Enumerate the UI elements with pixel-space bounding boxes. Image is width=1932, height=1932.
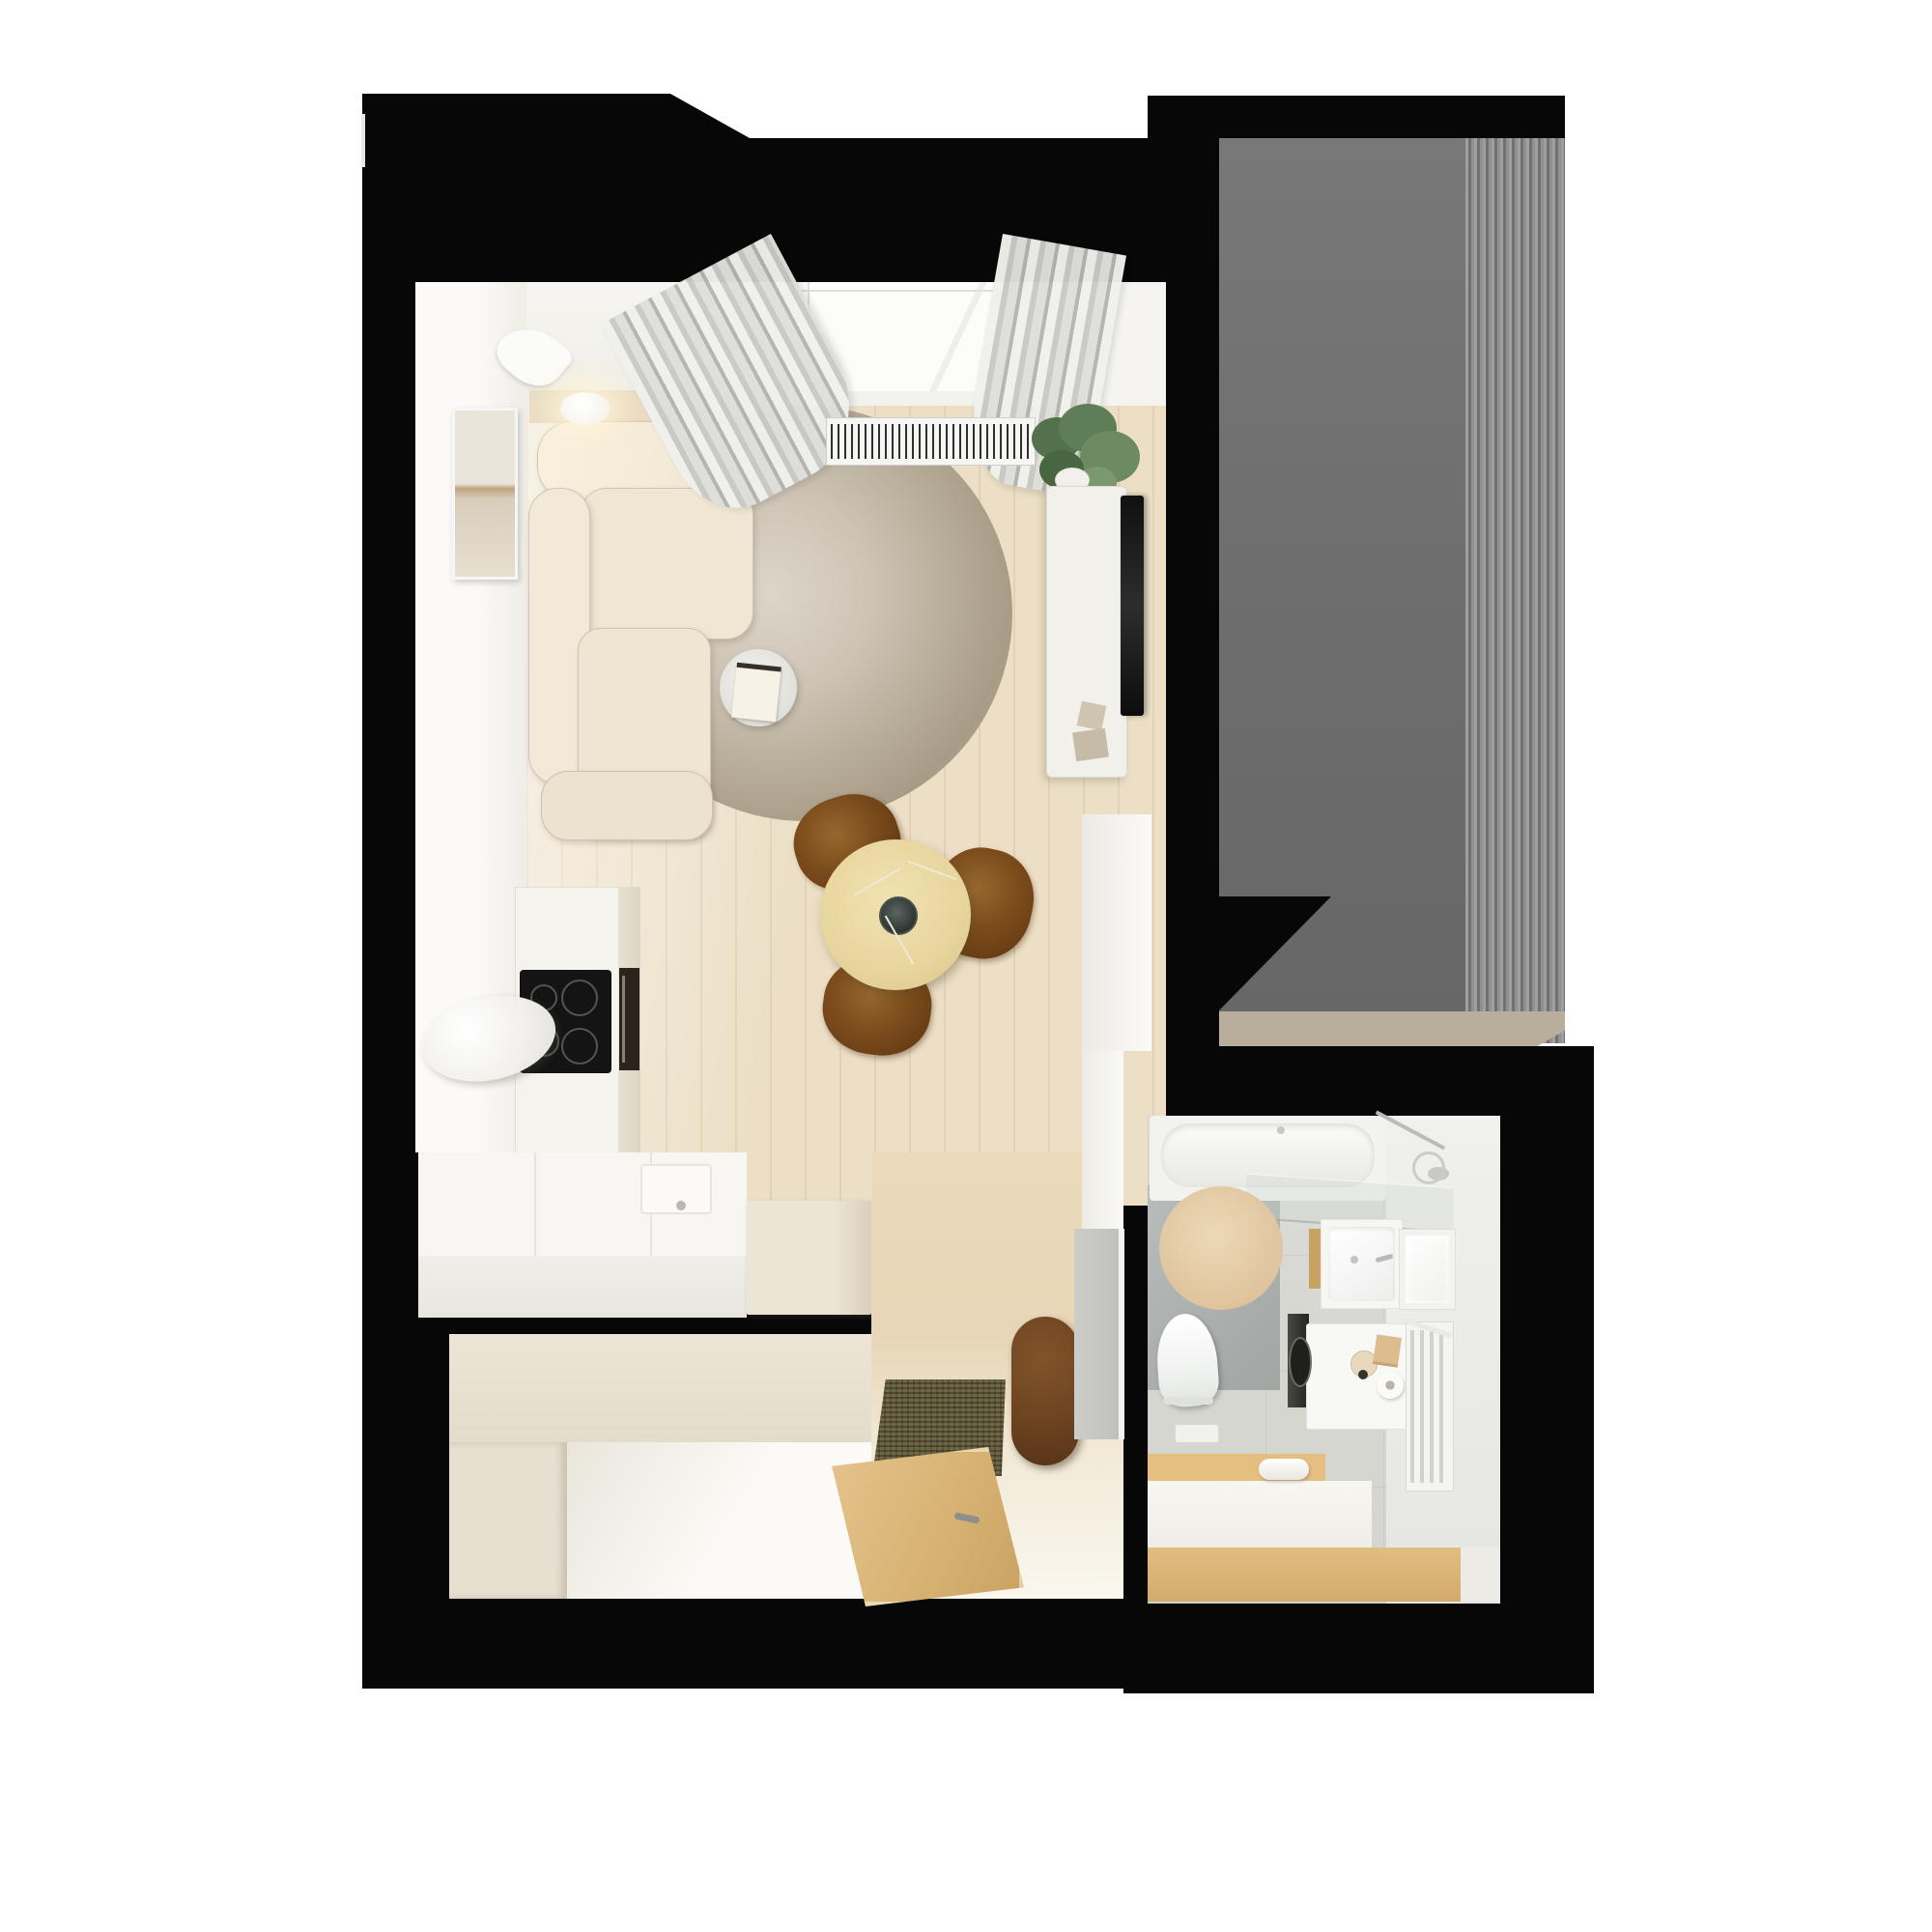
cabinet-decor-object <box>1077 701 1107 731</box>
cabinet-white-edge <box>1119 1229 1124 1439</box>
hallway-gray-cabinet <box>1074 1229 1119 1439</box>
kitchen-faucet <box>676 1201 686 1210</box>
toilet-paper-roll <box>1377 1372 1404 1399</box>
balcony-floor-strip <box>1219 1011 1565 1046</box>
washer-knob-dot <box>1358 1370 1368 1379</box>
oven-handle <box>622 976 625 1063</box>
wall-art-frame <box>452 408 518 580</box>
radiator-fins <box>831 424 1031 459</box>
partition-wall-upper <box>1082 814 1151 1051</box>
living-balcony-wall <box>1166 138 1219 1116</box>
toilet-base <box>1163 1397 1213 1405</box>
bathroom-round-rug <box>1159 1186 1283 1310</box>
sofa-back-cushion-bottom <box>541 771 713 840</box>
floor-lamp-glow <box>560 392 611 425</box>
wall-corner-sliver <box>361 114 365 167</box>
partition-wall-lower <box>1082 1051 1123 1229</box>
wall-mounted-tv <box>1121 496 1144 716</box>
bathroom-wood-step <box>1148 1548 1461 1602</box>
bathroom-bench <box>1148 1481 1372 1548</box>
storage-box <box>1373 1334 1402 1367</box>
towel-ring <box>1412 1151 1445 1184</box>
cabinet-decor-object <box>1072 728 1109 761</box>
mirror-cabinet <box>1399 1229 1456 1310</box>
balcony-shaded-wall <box>1219 138 1465 1011</box>
hallway-bench-pouf <box>1011 1317 1079 1465</box>
bathroom-bottom-white-strip <box>1461 1548 1500 1602</box>
counter-seam <box>534 1152 536 1259</box>
wall-art-image <box>455 411 515 577</box>
floor-radiator-grille <box>826 417 1036 466</box>
kitchen-peninsula-cabinet <box>747 1201 871 1315</box>
wardrobe-block <box>449 1334 871 1442</box>
wardrobe-left-column <box>449 1442 567 1599</box>
rolled-towel <box>1259 1459 1309 1480</box>
balcony-louvered-screen <box>1465 138 1565 1043</box>
cooktop-burner-ring <box>561 1028 598 1065</box>
balcony-top-wall <box>1148 96 1565 138</box>
washing-machine-door <box>1289 1337 1312 1387</box>
floor-socket <box>1175 1424 1219 1443</box>
floor-plan-canvas <box>0 0 1932 1932</box>
vanity-sink-unit <box>1321 1219 1403 1309</box>
book-on-table <box>731 663 781 722</box>
entry-floor-white <box>567 1442 871 1599</box>
cooktop-burner-ring <box>561 980 598 1016</box>
mirror-glass <box>1406 1236 1449 1303</box>
towel-radiator <box>1406 1321 1454 1492</box>
vanity-sink-basin <box>1328 1227 1395 1301</box>
kitchen-counter-front-face <box>418 1256 747 1318</box>
vanity-drain <box>1350 1256 1358 1264</box>
bathtub-drain <box>1277 1126 1285 1134</box>
sofa-chaise-cushion <box>580 488 753 639</box>
towel-radiator-fins <box>1410 1330 1449 1483</box>
